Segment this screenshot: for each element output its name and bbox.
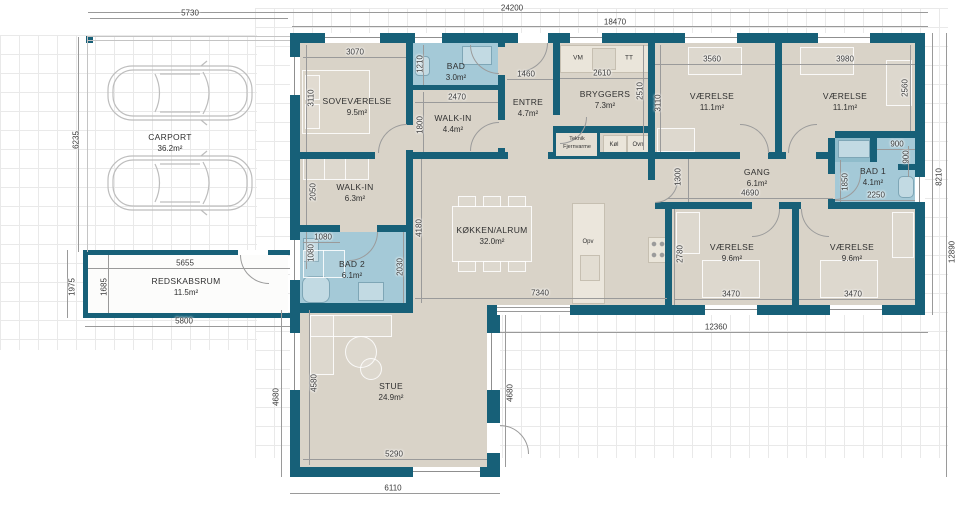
car-icon — [105, 58, 255, 128]
wall-segment — [377, 225, 413, 232]
chair — [508, 196, 526, 207]
window — [570, 33, 602, 43]
wall-shower-stub — [870, 138, 877, 162]
window — [915, 177, 925, 202]
dim-label: 1080 — [307, 244, 316, 262]
oven-label: Ovn — [632, 142, 643, 148]
bathtub-icon — [302, 276, 330, 303]
wall-segment — [300, 152, 375, 159]
sink-icon — [838, 140, 870, 158]
window — [415, 33, 442, 43]
dim-line — [303, 242, 340, 243]
dim-label: 2510 — [636, 82, 645, 100]
dim-label: 4180 — [415, 219, 424, 237]
dishwasher-label: Opv — [582, 239, 593, 245]
dim-label: 1975 — [68, 278, 77, 296]
dim-label: 6235 — [72, 131, 81, 149]
wardrobe-shelves — [303, 158, 369, 180]
dim-label: 12890 — [948, 241, 957, 263]
dim-label: 2470 — [448, 93, 466, 102]
dim-label: 900 — [902, 150, 911, 163]
room-area: 11.1m² — [700, 103, 724, 112]
dim-label: 7340 — [531, 289, 549, 298]
dim-label: 8210 — [935, 168, 944, 186]
dim-line — [281, 310, 282, 477]
window — [830, 305, 882, 315]
dim-line — [675, 299, 792, 300]
dim-line — [303, 57, 406, 58]
dim-line — [932, 33, 933, 315]
room-name: WALK-IN — [434, 113, 471, 123]
room-name: WALK-IN — [336, 182, 373, 192]
washer-label: VM — [573, 55, 583, 62]
wall-redskab-top — [268, 250, 290, 255]
floor-plan: 24200 18470 5730 6235 3070 3110 1210 247… — [0, 0, 960, 512]
dim-label: 3980 — [836, 55, 854, 64]
dim-line — [655, 64, 775, 65]
dim-label: 3470 — [844, 290, 862, 299]
dim-label: 1460 — [517, 70, 535, 79]
dim-line — [799, 299, 915, 300]
dim-line — [88, 268, 290, 269]
room-area: 6.3m² — [345, 194, 365, 203]
room-name: SOVEVÆRELSE — [323, 96, 392, 106]
dim-label: 3070 — [346, 48, 364, 57]
room-area: 9.5m² — [347, 108, 367, 117]
dim-label: 4580 — [310, 374, 319, 392]
dim-line — [85, 326, 290, 327]
room-label-bryggers: BRYGGERS7.3m² — [580, 89, 630, 111]
dim-line — [507, 79, 553, 80]
window — [413, 467, 480, 477]
dim-line — [835, 200, 915, 201]
laundry-sink — [592, 48, 616, 70]
window — [705, 305, 757, 315]
wall-segment — [779, 202, 801, 209]
dim-line — [560, 78, 648, 79]
dim-label: 5290 — [385, 450, 403, 459]
room-name: STUE — [379, 381, 403, 391]
terrace-door — [487, 423, 500, 453]
wall-segment — [498, 43, 505, 47]
room-label-carport: CARPORT36.2m² — [148, 132, 192, 154]
room-label-bad2: BAD 26.1m² — [339, 259, 365, 281]
room-area: 32.0m² — [480, 237, 505, 246]
room-name: BAD — [447, 61, 465, 71]
wardrobe — [892, 212, 914, 258]
dim-label: 4680 — [272, 388, 281, 406]
car-icon — [105, 148, 255, 218]
dim-line — [303, 459, 487, 460]
room-label-gang: GANG6.1m² — [744, 167, 770, 189]
room-name: REDSKABSRUM — [152, 276, 221, 286]
dim-label: 5730 — [181, 9, 199, 18]
room-name: VÆRELSE — [830, 242, 874, 252]
room-name: GANG — [744, 167, 770, 177]
dim-label: 2560 — [901, 79, 910, 97]
wall-segment — [828, 202, 915, 209]
room-name: VÆRELSE — [823, 91, 867, 101]
wall-segment — [498, 75, 505, 120]
room-label-walkin1: WALK-IN4.4m² — [434, 113, 471, 135]
wall-exterior-right — [915, 33, 925, 315]
chair — [458, 261, 476, 272]
dim-label: 18470 — [604, 18, 626, 27]
wall-segment — [553, 43, 560, 115]
window — [290, 333, 300, 390]
dim-label: 12360 — [705, 323, 727, 332]
wardrobe — [657, 128, 695, 152]
fridge-label: Køl — [610, 142, 619, 148]
island-sink — [580, 255, 600, 281]
room-area: 11.1m² — [833, 103, 857, 112]
dim-label: 24200 — [501, 4, 523, 13]
room-area: 6.1m² — [342, 271, 362, 280]
wall-redskab-left — [83, 250, 88, 318]
room-name: BAD 2 — [339, 259, 365, 269]
dim-line — [782, 64, 915, 65]
window — [290, 57, 300, 95]
window — [487, 333, 500, 390]
window — [685, 33, 737, 43]
wall-shower-stub — [898, 164, 915, 170]
room-label-entre: ENTRE4.7m² — [513, 97, 543, 119]
wall-segment — [290, 225, 340, 232]
wall-segment — [413, 152, 508, 159]
wall-segment — [835, 131, 915, 138]
teknik-label: Teknik — [569, 136, 585, 142]
dim-label: 3560 — [703, 55, 721, 64]
dryer-label: TT — [625, 55, 633, 62]
dim-label: 5800 — [175, 317, 193, 326]
dim-label: 3110 — [654, 94, 663, 111]
dim-label: 900 — [890, 140, 903, 149]
dim-label: 1685 — [100, 278, 109, 296]
room-name: VÆRELSE — [690, 91, 734, 101]
wall-segment — [655, 202, 752, 209]
wall-segment — [665, 209, 672, 305]
wall-segment — [775, 43, 782, 152]
carport-beam — [87, 40, 290, 41]
dim-line — [290, 493, 500, 494]
wall-segment — [655, 152, 740, 159]
room-label-stue: STUE24.9m² — [379, 381, 404, 403]
wall-segment — [792, 209, 799, 305]
room-area: 4.1m² — [863, 178, 883, 187]
room-area: 9.6m² — [842, 254, 862, 263]
fjernvarme-label: Fjernvarme — [563, 144, 591, 150]
window — [325, 33, 380, 43]
room-label-vaerelse-3: VÆRELSE9.6m² — [710, 242, 754, 264]
dim-label: 2030 — [396, 258, 405, 276]
dim-line — [500, 332, 928, 333]
dim-line — [910, 45, 911, 131]
carport-edge — [87, 36, 88, 252]
dim-label: 4690 — [741, 189, 759, 198]
dim-label: 1210 — [416, 55, 425, 73]
room-name: ENTRE — [513, 97, 543, 107]
room-area: 36.2m² — [158, 144, 183, 153]
wall-segment — [406, 43, 413, 125]
wall-segment — [648, 159, 655, 180]
dim-label: 1300 — [674, 168, 683, 186]
wall-segment — [768, 152, 786, 159]
chair — [483, 196, 501, 207]
dim-line — [415, 102, 498, 103]
room-label-sovevaerelse: SOVEVÆRELSE9.5m² — [323, 96, 392, 118]
dim-line — [668, 198, 833, 199]
dim-line — [415, 298, 667, 299]
chair — [458, 196, 476, 207]
dim-label: 5655 — [176, 259, 194, 268]
wall-segment — [413, 85, 498, 90]
room-area: 9.6m² — [722, 254, 742, 263]
room-area: 3.0m² — [446, 73, 466, 82]
wall-segment — [828, 138, 835, 174]
kitchen-island — [572, 203, 605, 304]
window — [290, 240, 300, 280]
room-area: 4.7m² — [518, 109, 538, 118]
room-label-vaerelse-1: VÆRELSE11.1m² — [690, 91, 734, 113]
room-label-vaerelse-4: VÆRELSE9.6m² — [830, 242, 874, 264]
room-area: 6.1m² — [747, 179, 767, 188]
chair — [508, 261, 526, 272]
room-area: 24.9m² — [379, 393, 404, 402]
dim-label: 1800 — [416, 116, 425, 134]
room-label-redskabsrum: REDSKABSRUM11.5m² — [152, 276, 221, 298]
dim-label: 2780 — [676, 245, 685, 263]
window — [818, 33, 870, 43]
dim-line — [688, 159, 689, 202]
room-name: CARPORT — [148, 132, 192, 142]
sliding-door — [497, 305, 570, 315]
dim-label: 2250 — [867, 191, 885, 200]
dim-label: 6110 — [384, 484, 401, 493]
toilet-icon — [898, 176, 914, 198]
dim-label: 2050 — [309, 183, 318, 201]
room-name: BAD 1 — [860, 166, 886, 176]
room-area: 7.3m² — [595, 101, 615, 110]
dim-label: 1850 — [841, 173, 850, 191]
dim-label: 3470 — [722, 290, 740, 299]
sofa — [310, 315, 334, 375]
dim-line — [90, 18, 288, 19]
room-label-bad1: BAD 14.1m² — [860, 166, 886, 188]
room-area: 11.5m² — [174, 288, 198, 297]
room-name: BRYGGERS — [580, 89, 630, 99]
room-label-walkin2: WALK-IN6.3m² — [336, 182, 373, 204]
carport-beam — [87, 36, 290, 37]
wall-redskab-top — [83, 250, 238, 255]
toilet-icon — [358, 282, 384, 301]
chair — [483, 261, 501, 272]
dim-label: 3110 — [307, 89, 316, 106]
room-label-bad: BAD3.0m² — [446, 61, 466, 83]
room-label-vaerelse-2: VÆRELSE11.1m² — [823, 91, 867, 113]
room-name: KØKKEN/ALRUM — [456, 225, 527, 235]
front-door — [518, 33, 548, 43]
coffee-table — [360, 358, 382, 380]
pillow — [305, 104, 320, 129]
dim-line — [306, 159, 307, 225]
room-area: 4.4m² — [443, 125, 463, 134]
dim-label: 1080 — [314, 233, 332, 242]
dim-label: 2610 — [593, 69, 611, 78]
dim-label: 4680 — [506, 384, 515, 402]
room-name: VÆRELSE — [710, 242, 754, 252]
room-label-koekken-alrum: KØKKEN/ALRUM32.0m² — [456, 225, 527, 247]
